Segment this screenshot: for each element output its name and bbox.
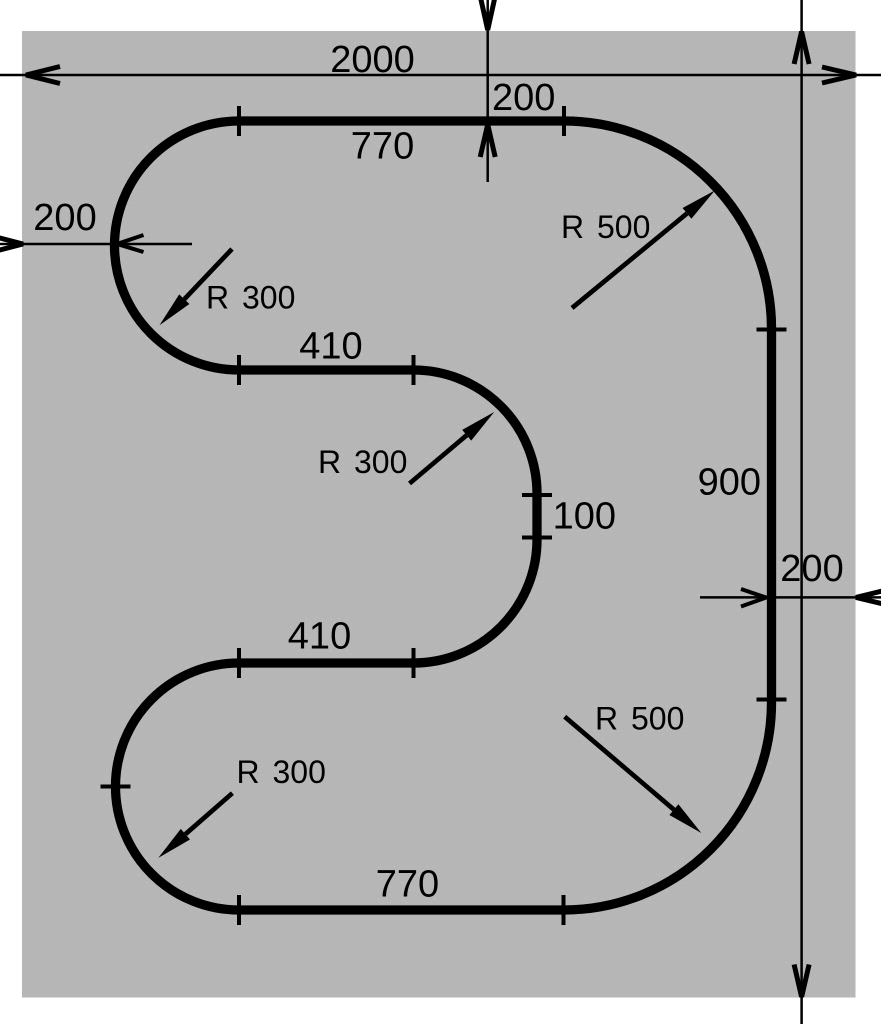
svg-text:200: 200 [492,77,555,119]
svg-text:410: 410 [299,326,362,368]
svg-text:770: 770 [351,126,414,168]
svg-text:500: 500 [631,701,684,737]
svg-text:300: 300 [354,444,407,480]
svg-text:300: 300 [242,280,295,316]
svg-text:900: 900 [698,462,761,504]
svg-text:500: 500 [597,209,650,245]
svg-text:R: R [561,209,584,245]
svg-text:R: R [237,754,260,790]
svg-text:770: 770 [376,864,439,906]
svg-text:410: 410 [288,616,351,658]
svg-text:R: R [595,701,618,737]
svg-text:200: 200 [780,548,843,590]
svg-text:100: 100 [553,496,616,538]
svg-text:300: 300 [273,754,326,790]
svg-text:2000: 2000 [330,39,415,81]
svg-text:R: R [206,280,229,316]
svg-text:200: 200 [33,197,96,239]
svg-text:R: R [318,444,341,480]
